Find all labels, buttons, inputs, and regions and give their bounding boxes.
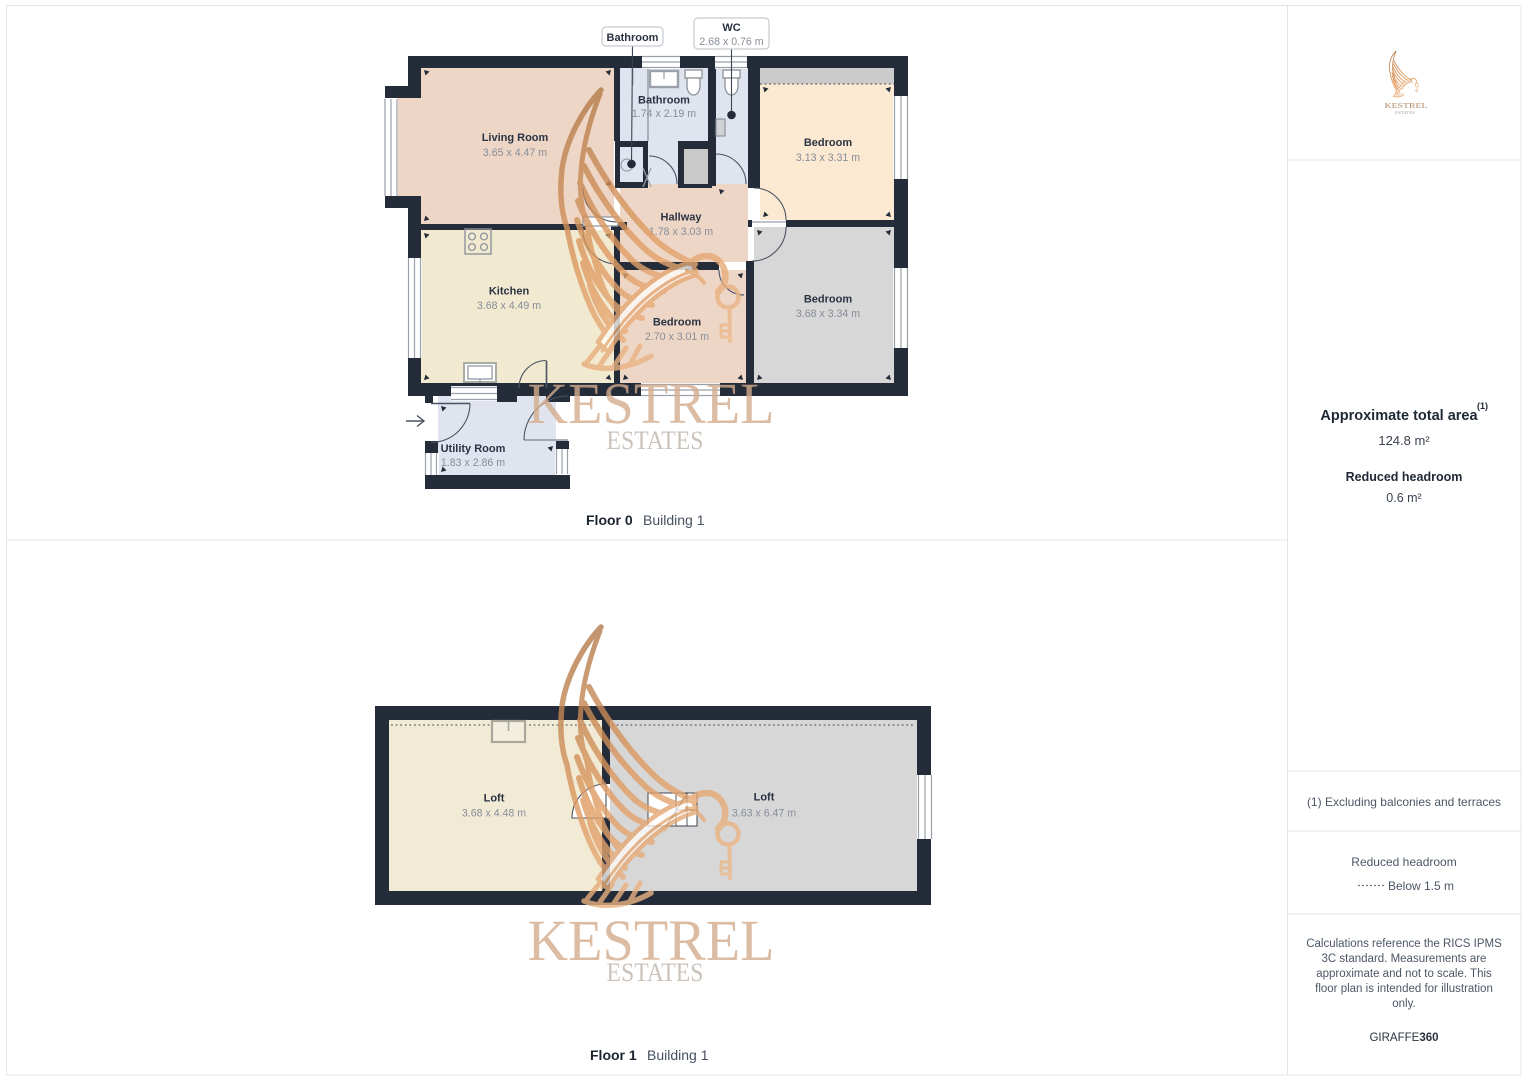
svg-text:Reduced headroom: Reduced headroom	[1351, 855, 1456, 869]
svg-text:3C standard. Measurements are: 3C standard. Measurements are	[1322, 953, 1487, 965]
svg-text:Approximate total area: Approximate total area	[1320, 408, 1478, 424]
svg-text:Calculations reference the RIC: Calculations reference the RICS IPMS	[1306, 938, 1502, 950]
svg-text:3.68 x 4.48 m: 3.68 x 4.48 m	[462, 808, 526, 820]
svg-text:Bathroom: Bathroom	[638, 95, 690, 107]
svg-text:Reduced headroom: Reduced headroom	[1346, 470, 1463, 484]
svg-text:3.65 x 4.47 m: 3.65 x 4.47 m	[483, 147, 547, 159]
svg-text:Loft: Loft	[754, 792, 775, 804]
svg-text:ESTATES: ESTATES	[1395, 110, 1416, 115]
svg-text:Bedroom: Bedroom	[804, 137, 853, 149]
svg-text:Living Room: Living Room	[482, 132, 549, 144]
svg-text:1.78 x 3.03 m: 1.78 x 3.03 m	[649, 226, 713, 238]
svg-text:3.13 x 3.31 m: 3.13 x 3.31 m	[796, 152, 860, 164]
svg-text:approximate and not to scale.: approximate and not to scale. This	[1316, 968, 1492, 980]
svg-text:WC: WC	[722, 22, 740, 34]
svg-text:0.6 m²: 0.6 m²	[1386, 491, 1421, 505]
svg-text:GIRAFFE360: GIRAFFE360	[1369, 1032, 1438, 1044]
svg-text:ESTATES: ESTATES	[607, 958, 704, 987]
svg-text:Building 1: Building 1	[647, 1047, 709, 1063]
svg-text:3.68 x 3.34 m: 3.68 x 3.34 m	[796, 308, 860, 320]
svg-text:ESTATES: ESTATES	[607, 426, 704, 455]
svg-text:floor plan is intended for ill: floor plan is intended for illustration	[1315, 983, 1493, 995]
svg-text:(1) Excluding balconies and te: (1) Excluding balconies and terraces	[1307, 795, 1501, 809]
svg-text:Below 1.5 m: Below 1.5 m	[1388, 879, 1454, 893]
svg-text:Bedroom: Bedroom	[653, 317, 702, 329]
svg-text:Floor 0: Floor 0	[586, 512, 633, 528]
svg-text:KESTREL: KESTREL	[1385, 101, 1429, 110]
svg-text:3.68 x 4.49 m: 3.68 x 4.49 m	[477, 300, 541, 312]
svg-text:Floor 1: Floor 1	[590, 1047, 637, 1063]
svg-text:Bedroom: Bedroom	[804, 294, 853, 306]
svg-text:Building 1: Building 1	[643, 512, 705, 528]
svg-text:Hallway: Hallway	[661, 212, 703, 224]
svg-text:Bathroom: Bathroom	[607, 32, 659, 44]
svg-text:only.: only.	[1392, 998, 1415, 1010]
svg-text:2.68 x 0.76 m: 2.68 x 0.76 m	[699, 36, 763, 48]
svg-text:Loft: Loft	[484, 793, 505, 805]
svg-text:2.70 x 3.01 m: 2.70 x 3.01 m	[645, 331, 709, 343]
svg-text:1.74 x 2.19 m: 1.74 x 2.19 m	[632, 108, 696, 120]
svg-text:3.63 x 6.47 m: 3.63 x 6.47 m	[732, 808, 796, 820]
svg-text:(1): (1)	[1477, 401, 1488, 411]
svg-text:Kitchen: Kitchen	[489, 286, 530, 298]
svg-text:Utility Room: Utility Room	[441, 443, 506, 455]
svg-text:1.83 x 2.86 m: 1.83 x 2.86 m	[441, 457, 505, 469]
svg-text:124.8 m²: 124.8 m²	[1378, 433, 1430, 448]
